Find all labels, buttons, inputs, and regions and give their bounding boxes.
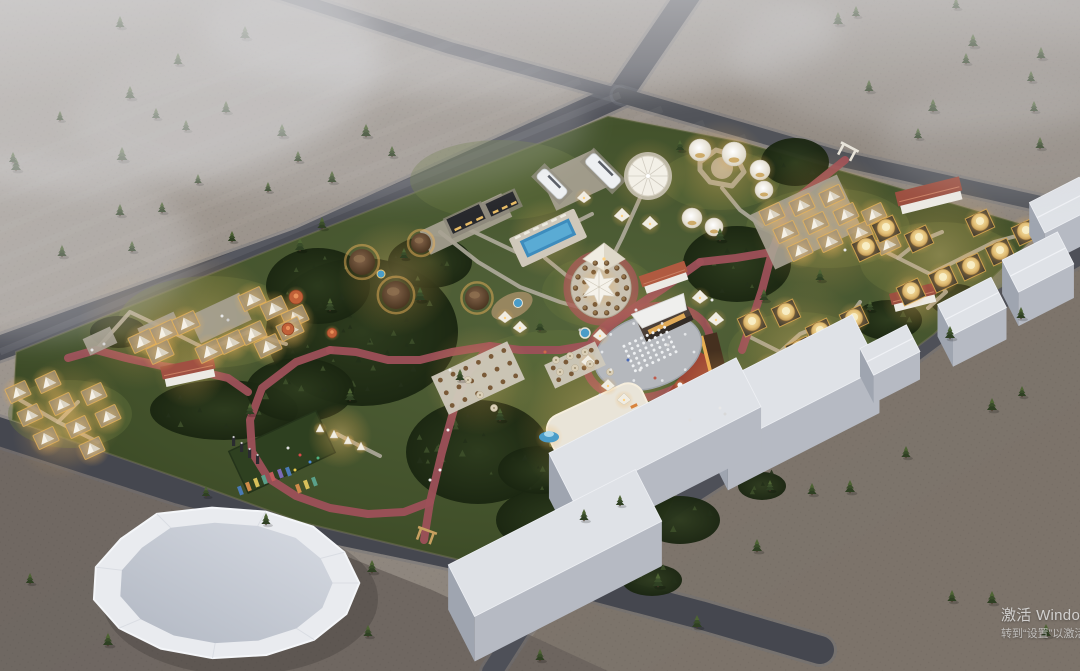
person [91, 349, 94, 352]
dining-table [569, 371, 574, 376]
parasol-pole [479, 394, 481, 396]
canopy-light [649, 223, 651, 225]
tree-shadow [365, 636, 375, 640]
ufo-dome [544, 431, 554, 437]
tree-shadow [903, 457, 913, 461]
dining-table [463, 366, 468, 371]
climbing-post [232, 437, 235, 446]
dome-highlight [354, 255, 366, 263]
canopy-light [583, 197, 585, 199]
tree-shadow [297, 250, 308, 254]
dining-table [444, 390, 449, 395]
canopy-light [623, 399, 625, 401]
post-top [249, 448, 251, 450]
tree-shadow [105, 645, 116, 649]
person [227, 319, 230, 322]
person [724, 413, 727, 416]
plaza-furniture [684, 368, 687, 371]
tree-shadow [263, 524, 273, 528]
person [449, 369, 452, 372]
dining-table [501, 348, 506, 353]
dining-table [476, 360, 481, 365]
dining-table-top [605, 311, 608, 314]
watermark-line1: 激活 Window [1001, 608, 1080, 623]
person [844, 249, 847, 252]
tree-shadow [868, 310, 877, 313]
watermark-line2: 转到“设置”以激活 [1001, 629, 1080, 640]
person [719, 407, 722, 410]
parasol-pole [574, 367, 576, 369]
plaza-furniture [609, 333, 612, 336]
dining-table [457, 384, 462, 389]
dining-table [482, 373, 487, 378]
post-top [241, 442, 243, 444]
plaza-furniture [609, 368, 612, 371]
dining-table-top [583, 306, 586, 309]
shell-doorway [760, 193, 768, 197]
dining-table [589, 348, 594, 353]
dining-table [450, 403, 455, 408]
person [299, 454, 302, 457]
canopy-light [504, 317, 506, 319]
dome-highlight [469, 291, 480, 298]
tree-shadow [369, 572, 380, 576]
person [447, 429, 450, 432]
plaza-furniture [693, 351, 696, 354]
rendering-canvas: 激活 Window 转到“设置”以激活 [0, 0, 1080, 671]
tree-shadow [497, 420, 508, 424]
dining-table-top [583, 266, 586, 269]
aerial-render [0, 0, 1080, 671]
person [309, 461, 312, 464]
tree-shadow [717, 240, 728, 244]
parasol-pole [467, 379, 469, 381]
person [439, 469, 442, 472]
tree-shadow [989, 603, 1000, 607]
yurt-crown [976, 217, 984, 225]
dining-table [438, 378, 443, 383]
canopy-light [715, 319, 717, 321]
tree-shadow [817, 280, 827, 284]
tree-shadow [347, 400, 358, 404]
big-top-peak [646, 174, 650, 178]
tree-shadow [809, 494, 819, 498]
dining-table-top [576, 297, 579, 300]
canopy-light [621, 215, 623, 217]
dining-table-top [624, 286, 627, 289]
tree-shadow [678, 150, 687, 153]
person [287, 447, 290, 450]
dining-table-top [593, 261, 596, 264]
person [579, 329, 582, 332]
yurt-crown [939, 273, 947, 281]
dining-table [551, 366, 556, 371]
dining-table-top [573, 286, 576, 289]
dining-table [513, 373, 518, 378]
tree-shadow [581, 520, 591, 524]
tree-shadow [327, 310, 338, 314]
tree-shadow [230, 241, 239, 244]
dining-table-top [593, 311, 596, 314]
parasol-pole [569, 355, 571, 357]
tree-shadow [949, 601, 959, 605]
post-top [233, 436, 235, 438]
tree-shadow [319, 228, 329, 232]
dining-table-top [576, 275, 579, 278]
shell-doorway [710, 230, 718, 234]
dining-table [488, 385, 493, 390]
tree-shadow [402, 258, 411, 261]
tree-shadow [989, 410, 1000, 414]
dining-table [451, 372, 456, 377]
person [249, 339, 252, 342]
person [639, 369, 642, 372]
sail-light [602, 257, 605, 260]
plaza-furniture [632, 379, 635, 382]
parasol-pole [609, 371, 611, 373]
dining-table [507, 361, 512, 366]
person [667, 344, 670, 347]
person [627, 359, 630, 362]
hot-tub [514, 299, 523, 308]
tree-shadow [768, 490, 777, 493]
tree-shadow [1018, 318, 1028, 322]
yurt-crown [967, 261, 975, 269]
tree-shadow [28, 583, 37, 586]
climbing-post [256, 455, 259, 464]
person [429, 479, 432, 482]
tree-shadow [537, 660, 547, 664]
climbing-post [240, 443, 243, 452]
person [635, 309, 638, 312]
person [294, 469, 297, 472]
person [689, 419, 692, 422]
plaza-furniture [684, 333, 687, 336]
yurt-crown [862, 242, 870, 250]
cone-tip [286, 326, 290, 330]
plaza-furniture [661, 322, 664, 325]
yurt-crown [915, 233, 923, 241]
tree-shadow [618, 505, 627, 508]
yurt-crown [748, 317, 756, 325]
cone-tip [294, 294, 299, 299]
tree-shadow [1020, 396, 1029, 399]
tree-shadow [204, 496, 213, 499]
person [317, 457, 320, 460]
tree-shadow [247, 414, 257, 418]
plaza-furniture [661, 379, 664, 382]
dining-table-top [615, 306, 618, 309]
tree-shadow [847, 492, 858, 496]
dining-table [489, 354, 494, 359]
cone-tip [330, 330, 334, 334]
dome-highlight [387, 287, 400, 295]
parasol-pole [589, 363, 591, 365]
dome-highlight [415, 238, 424, 244]
canopy-light [699, 297, 701, 299]
dining-table [462, 397, 467, 402]
person [103, 343, 106, 346]
pond [580, 328, 590, 338]
parasol-pole [584, 351, 586, 353]
tree-shadow [654, 585, 666, 589]
shell-doorway [688, 221, 697, 225]
parasol-pole [493, 407, 495, 409]
canopy-light [599, 335, 601, 337]
windows-activation-watermark: 激活 Window 转到“设置”以激活 [1001, 608, 1080, 640]
tree-shadow [761, 300, 771, 304]
dining-table-top [605, 261, 608, 264]
yurt-crown [882, 223, 890, 231]
yurt-crown [1022, 226, 1030, 234]
post-top [257, 454, 259, 456]
dining-table [501, 379, 506, 384]
yurt-crown [782, 307, 790, 315]
climbing-post [248, 449, 251, 458]
dining-table-top [622, 297, 625, 300]
dining-table-top [615, 266, 618, 269]
parasol-pole [559, 371, 561, 373]
shell-doorway [729, 157, 740, 162]
person [599, 394, 602, 397]
person [544, 351, 547, 354]
tree-shadow [537, 330, 547, 334]
tree-shadow [694, 627, 705, 631]
plaza-furniture [601, 351, 604, 354]
person [221, 315, 224, 318]
tree-shadow [457, 380, 467, 384]
person [654, 377, 657, 380]
dining-table [495, 367, 500, 372]
yurt-crown [907, 286, 915, 294]
canopy-light [607, 385, 609, 387]
tree-shadow [416, 299, 428, 303]
parasol-pole [555, 359, 557, 361]
top-haze [0, 0, 1080, 100]
hot-tub-small [377, 270, 385, 278]
dining-table [556, 377, 561, 382]
canopy-light [519, 327, 521, 329]
tree-shadow [754, 551, 765, 555]
tree-shadow [947, 338, 958, 342]
dining-table-top [622, 275, 625, 278]
shell-doorway [695, 153, 705, 158]
yurt-crown [996, 246, 1004, 254]
person [711, 299, 714, 302]
plaza-furniture [632, 322, 635, 325]
dining-table [564, 360, 569, 365]
